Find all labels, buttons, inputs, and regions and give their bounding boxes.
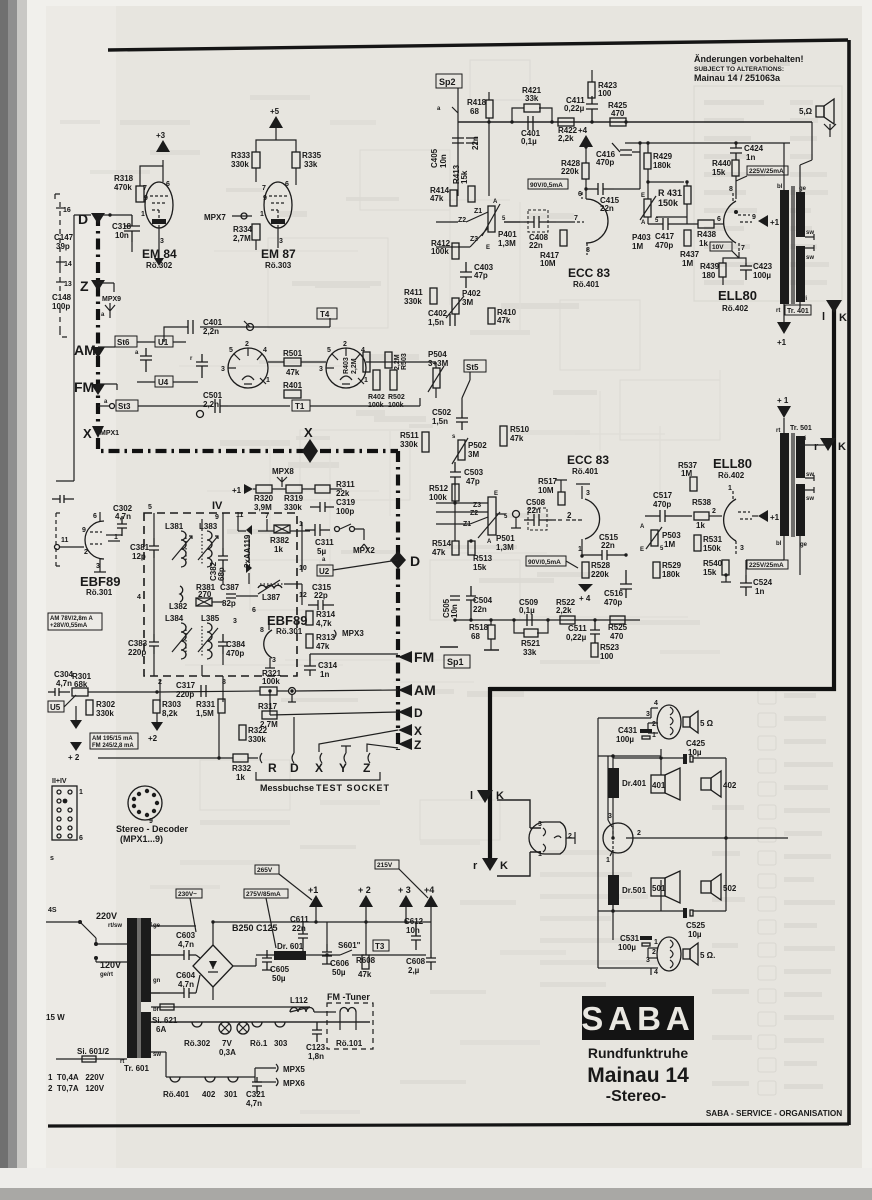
svg-text:330k: 330k	[96, 709, 114, 718]
svg-text:2: 2	[343, 341, 347, 348]
svg-text:L382: L382	[169, 602, 188, 611]
svg-text:3: 3	[272, 657, 276, 664]
svg-text:Tr. 401: Tr. 401	[787, 308, 809, 315]
svg-text:2,7M: 2,7M	[233, 234, 251, 243]
svg-text:330k: 330k	[231, 160, 249, 169]
svg-text:0,22µ: 0,22µ	[564, 104, 585, 113]
svg-text:X: X	[315, 761, 323, 775]
svg-text:+1: +1	[308, 885, 318, 895]
svg-text:10: 10	[299, 565, 307, 572]
svg-text:rt: rt	[776, 428, 780, 434]
svg-text:100µ: 100µ	[753, 271, 771, 280]
svg-text:s: s	[50, 855, 54, 862]
svg-text:47k: 47k	[430, 194, 444, 203]
svg-text:C608: C608	[406, 957, 426, 966]
svg-text:5 Ω: 5 Ω	[700, 719, 714, 728]
svg-text:220p: 220p	[176, 690, 194, 699]
svg-text:4: 4	[654, 700, 658, 707]
svg-text:R313: R313	[316, 633, 336, 642]
svg-text:Änderungen vorbehalten!: Änderungen vorbehalten!	[694, 54, 804, 64]
svg-text:8: 8	[586, 247, 590, 254]
svg-text:C504: C504	[473, 596, 493, 605]
svg-text:sw: sw	[806, 496, 814, 502]
svg-text:C402: C402	[428, 309, 448, 318]
svg-text:1n: 1n	[755, 587, 764, 596]
svg-text:SUBJECT TO ALTERATIONS:: SUBJECT TO ALTERATIONS:	[694, 66, 784, 73]
svg-text:R529: R529	[662, 561, 682, 570]
svg-text:C319: C319	[336, 498, 356, 507]
svg-text:C611: C611	[290, 915, 309, 924]
svg-text:K: K	[839, 312, 847, 324]
svg-text:2: 2	[712, 508, 716, 515]
svg-text:R540: R540	[703, 559, 723, 568]
svg-text:Z: Z	[80, 278, 89, 294]
svg-text:Tr. 501: Tr. 501	[790, 425, 812, 432]
svg-text:100k: 100k	[368, 402, 384, 409]
svg-text:5: 5	[327, 347, 331, 354]
svg-text:P402: P402	[462, 289, 481, 298]
svg-text:1,8n: 1,8n	[308, 1052, 324, 1061]
svg-text:Rö.301: Rö.301	[276, 627, 303, 636]
svg-text:33k: 33k	[523, 648, 537, 657]
svg-text:100µ: 100µ	[618, 943, 636, 952]
svg-text:bl: bl	[776, 541, 782, 547]
svg-text:47k: 47k	[497, 316, 511, 325]
svg-text:R538: R538	[692, 498, 712, 507]
svg-text:10µ: 10µ	[688, 930, 702, 939]
svg-text:47p: 47p	[466, 477, 480, 486]
svg-text:100µ: 100µ	[616, 735, 634, 744]
svg-text:C531: C531	[620, 934, 640, 943]
svg-text:1: 1	[364, 377, 368, 384]
svg-text:C148: C148	[52, 293, 72, 302]
svg-text:L387: L387	[262, 593, 281, 602]
svg-text:R608: R608	[356, 956, 376, 965]
svg-text:Stereo - Decoder: Stereo - Decoder	[116, 824, 189, 834]
svg-text:C383: C383	[128, 639, 148, 648]
svg-text:6A: 6A	[156, 1025, 166, 1034]
svg-text:C401: C401	[203, 318, 223, 327]
svg-text:12p: 12p	[132, 552, 146, 561]
svg-text:1: 1	[266, 377, 270, 384]
svg-text:150k: 150k	[658, 198, 679, 208]
svg-text:1,3M: 1,3M	[498, 239, 516, 248]
svg-text:AM 195/15 mA: AM 195/15 mA	[92, 736, 133, 742]
svg-text:U4: U4	[158, 378, 169, 387]
svg-text:SABA: SABA	[581, 1000, 695, 1037]
svg-text:4,7n: 4,7n	[246, 1099, 262, 1108]
svg-text:9: 9	[263, 195, 267, 202]
svg-text:1: 1	[728, 485, 732, 492]
svg-text:2xAA119: 2xAA119	[243, 534, 252, 568]
svg-text:470p: 470p	[226, 649, 244, 658]
svg-text:90V/0,5mA: 90V/0,5mA	[528, 559, 561, 566]
svg-text:R321: R321	[262, 669, 282, 678]
svg-text:ge: ge	[800, 542, 808, 548]
svg-text:Si. 601/2: Si. 601/2	[77, 1047, 110, 1056]
svg-text:502: 502	[723, 884, 737, 893]
svg-text:Sp2: Sp2	[439, 77, 456, 87]
svg-text:15k: 15k	[460, 170, 469, 184]
svg-text:3: 3	[96, 563, 100, 570]
svg-text:275V/85mA: 275V/85mA	[246, 891, 281, 898]
svg-text:402: 402	[202, 1090, 216, 1099]
svg-text:Rö.401: Rö.401	[572, 467, 599, 476]
svg-text:11: 11	[61, 537, 69, 544]
svg-text:MPX6: MPX6	[283, 1079, 305, 1088]
svg-text:+4: +4	[424, 885, 434, 895]
svg-text:ge/rt: ge/rt	[100, 972, 113, 978]
svg-text:C405: C405	[430, 148, 439, 168]
svg-text:sw: sw	[153, 1052, 161, 1058]
svg-text:220k: 220k	[561, 167, 579, 176]
svg-text:gn: gn	[153, 978, 161, 984]
svg-text:6: 6	[93, 513, 97, 520]
svg-text:ECC 83: ECC 83	[568, 266, 610, 280]
svg-text:R401: R401	[283, 381, 303, 390]
svg-text:0,1µ: 0,1µ	[519, 606, 535, 615]
svg-text:16: 16	[63, 207, 71, 214]
svg-text:100k: 100k	[429, 493, 447, 502]
svg-text:6: 6	[578, 191, 582, 198]
svg-text:2,µ: 2,µ	[408, 966, 420, 975]
svg-text:9: 9	[82, 527, 86, 534]
svg-text:Z2: Z2	[470, 510, 478, 517]
svg-text:R331: R331	[196, 700, 216, 709]
svg-text:22n: 22n	[529, 241, 543, 250]
svg-text:IV: IV	[212, 500, 223, 512]
svg-text:SABA - SERVICE - ORGANISATION: SABA - SERVICE - ORGANISATION	[706, 1109, 842, 1118]
svg-text:2 T0,7A 120V: 2 T0,7A 120V	[48, 1084, 105, 1093]
svg-text:C425: C425	[686, 739, 706, 748]
svg-text:7: 7	[265, 513, 269, 520]
svg-text:T4: T4	[320, 310, 330, 319]
svg-text:R514: R514	[432, 539, 452, 548]
svg-text:4: 4	[654, 969, 658, 976]
svg-text:C605: C605	[270, 965, 290, 974]
svg-text:3: 3	[279, 238, 283, 245]
svg-text:6: 6	[79, 835, 83, 842]
svg-text:C502: C502	[432, 408, 452, 417]
svg-text:7V: 7V	[222, 1039, 232, 1048]
svg-text:l: l	[822, 311, 825, 323]
svg-text:X: X	[83, 426, 92, 441]
svg-text:R335: R335	[302, 151, 322, 160]
svg-text:B250 C125: B250 C125	[232, 923, 278, 933]
svg-text:C147: C147	[54, 233, 74, 242]
svg-text:U1: U1	[158, 338, 169, 347]
svg-text:4,7n: 4,7n	[115, 512, 131, 521]
svg-text:C501: C501	[203, 391, 223, 400]
svg-text:2: 2	[637, 830, 641, 837]
svg-text:1,3M: 1,3M	[496, 543, 514, 552]
svg-text:E: E	[641, 193, 645, 199]
svg-text:15k: 15k	[703, 568, 717, 577]
svg-text:R502: R502	[388, 394, 405, 401]
svg-text:br: br	[153, 1007, 160, 1013]
svg-text:22k: 22k	[336, 489, 350, 498]
svg-text:R333: R333	[231, 151, 251, 160]
svg-text:rt/sw: rt/sw	[108, 923, 122, 929]
svg-text:402: 402	[723, 781, 737, 790]
svg-text:10V: 10V	[712, 244, 724, 251]
svg-text:1: 1	[606, 857, 610, 864]
svg-text:Rö.303: Rö.303	[265, 261, 292, 270]
svg-text:10n: 10n	[115, 231, 129, 240]
svg-text:Tr. 601: Tr. 601	[124, 1064, 149, 1073]
svg-text:6: 6	[285, 181, 289, 188]
svg-text:1,5n: 1,5n	[432, 417, 448, 426]
svg-text:47p: 47p	[474, 271, 488, 280]
svg-text:R317: R317	[258, 702, 278, 711]
svg-text:EBF89: EBF89	[267, 613, 307, 628]
svg-text:1M: 1M	[682, 259, 693, 268]
svg-text:3: 3	[319, 366, 323, 373]
svg-text:R438: R438	[697, 230, 717, 239]
svg-text:90V/0,5mA: 90V/0,5mA	[530, 182, 563, 189]
svg-text:D: D	[410, 553, 420, 569]
svg-text:5: 5	[148, 504, 152, 511]
svg-text:R513: R513	[473, 554, 493, 563]
svg-text:401: 401	[652, 781, 666, 790]
svg-text:3M: 3M	[468, 450, 479, 459]
svg-text:5: 5	[229, 347, 233, 354]
svg-text:C304: C304	[54, 670, 74, 679]
svg-text:D: D	[78, 211, 88, 227]
svg-text:L385: L385	[201, 614, 220, 623]
svg-text:R510: R510	[510, 425, 530, 434]
svg-text:C317: C317	[176, 681, 196, 690]
svg-text:22p: 22p	[314, 591, 328, 600]
svg-text:180k: 180k	[653, 161, 671, 170]
svg-text:10n: 10n	[406, 926, 420, 935]
svg-text:EM 87: EM 87	[261, 247, 296, 261]
svg-text:15k: 15k	[473, 563, 487, 572]
svg-text:47k: 47k	[432, 548, 446, 557]
svg-text:215V: 215V	[377, 862, 393, 869]
svg-text:303: 303	[274, 1039, 288, 1048]
svg-text:sw: sw	[806, 255, 814, 261]
svg-text:10M: 10M	[540, 259, 556, 268]
svg-text:St5: St5	[466, 363, 479, 372]
svg-text:Si. 621: Si. 621	[152, 1016, 178, 1025]
svg-text:+1: +1	[770, 218, 780, 227]
svg-text:Dr.501: Dr.501	[622, 886, 647, 895]
svg-text:180k: 180k	[662, 570, 680, 579]
svg-text:6: 6	[717, 216, 721, 223]
svg-text:R320: R320	[254, 494, 274, 503]
svg-text:5 Ω.: 5 Ω.	[700, 951, 715, 960]
svg-text:100k: 100k	[431, 247, 449, 256]
svg-text:470p: 470p	[653, 500, 671, 509]
svg-text:Rö.402: Rö.402	[718, 471, 745, 480]
svg-text:2: 2	[245, 341, 249, 348]
svg-text:ELL80: ELL80	[713, 456, 752, 471]
svg-text:22n: 22n	[292, 924, 306, 933]
svg-text:330k: 330k	[400, 440, 418, 449]
svg-text:Z1: Z1	[474, 208, 482, 215]
svg-text:C321: C321	[246, 1090, 266, 1099]
svg-text:R302: R302	[96, 700, 116, 709]
svg-text:Messbuchse: Messbuchse	[260, 783, 314, 793]
svg-text:K: K	[838, 441, 846, 453]
svg-text:33k: 33k	[525, 94, 539, 103]
svg-text:501: 501	[652, 884, 666, 893]
svg-text:100: 100	[600, 652, 614, 661]
svg-text:8,2k: 8,2k	[162, 709, 178, 718]
svg-text:1k: 1k	[699, 239, 708, 248]
svg-text:C381: C381	[130, 543, 150, 552]
svg-text:1n: 1n	[320, 670, 329, 679]
svg-text:C503: C503	[464, 468, 484, 477]
svg-text:L384: L384	[165, 614, 184, 623]
svg-text:3: 3	[586, 490, 590, 497]
svg-text:3: 3	[740, 545, 744, 552]
svg-text:II+IV: II+IV	[52, 778, 67, 785]
svg-text:X: X	[414, 724, 422, 738]
svg-text:265V: 265V	[257, 867, 273, 874]
svg-text:10n: 10n	[450, 604, 459, 618]
svg-text:L112: L112	[290, 996, 308, 1005]
svg-text:13: 13	[64, 281, 72, 288]
svg-text:1M: 1M	[632, 242, 643, 251]
svg-text:R439: R439	[700, 262, 720, 271]
svg-text:St6: St6	[117, 338, 130, 347]
svg-text:AM: AM	[414, 682, 436, 698]
svg-text:C516: C516	[604, 589, 624, 598]
svg-text:A: A	[493, 199, 498, 205]
svg-text:470: 470	[611, 109, 625, 118]
svg-text:+3: +3	[156, 131, 166, 140]
svg-text:470k: 470k	[114, 183, 132, 192]
svg-text:2,2k: 2,2k	[556, 606, 572, 615]
svg-text:R531: R531	[703, 535, 723, 544]
svg-text:R437: R437	[680, 250, 700, 259]
svg-text:TEST SOCKET: TEST SOCKET	[316, 783, 390, 793]
svg-text:301: 301	[224, 1090, 238, 1099]
svg-text:U5: U5	[50, 703, 61, 712]
svg-text:1n: 1n	[746, 153, 755, 162]
svg-text:3+3M: 3+3M	[428, 359, 449, 368]
svg-text:22n: 22n	[471, 136, 480, 150]
svg-text:68: 68	[471, 632, 480, 641]
svg-text:P401: P401	[498, 230, 517, 239]
svg-text:P502: P502	[468, 441, 487, 450]
svg-text:9: 9	[752, 214, 756, 221]
svg-text:MPX1: MPX1	[100, 430, 119, 437]
svg-text:1: 1	[654, 939, 658, 946]
svg-text:3: 3	[646, 711, 650, 718]
svg-text:FM: FM	[414, 649, 434, 665]
svg-text:Dr. 601: Dr. 601	[277, 942, 304, 951]
svg-text:4,7n: 4,7n	[178, 980, 194, 989]
svg-text:100p: 100p	[336, 507, 354, 516]
svg-text:470p: 470p	[596, 158, 614, 167]
svg-text:AM: AM	[74, 342, 96, 358]
svg-text:68p: 68p	[217, 567, 226, 581]
svg-text:+ 3: + 3	[398, 885, 411, 895]
svg-text:T1: T1	[295, 402, 305, 411]
svg-text:2: 2	[652, 949, 656, 956]
svg-text:r: r	[473, 860, 478, 872]
svg-text:Dr.401: Dr.401	[622, 779, 647, 788]
svg-text:+5: +5	[270, 107, 280, 116]
svg-text:22n: 22n	[527, 506, 541, 515]
svg-text:R521: R521	[521, 639, 541, 648]
svg-text:sw: sw	[806, 472, 814, 478]
svg-text:Rö.302: Rö.302	[184, 1039, 211, 1048]
svg-text:P503: P503	[662, 531, 681, 540]
svg-text:D: D	[414, 706, 423, 720]
svg-text:X: X	[304, 425, 313, 440]
svg-text:3M: 3M	[462, 298, 473, 307]
svg-text:R418: R418	[467, 98, 487, 107]
svg-text:C423: C423	[753, 262, 773, 271]
svg-text:4: 4	[263, 347, 267, 354]
svg-text:1M: 1M	[664, 540, 675, 549]
svg-text:330k: 330k	[404, 297, 422, 306]
svg-text:+2: +2	[148, 734, 158, 743]
svg-text:3: 3	[538, 821, 542, 828]
svg-text:K: K	[500, 860, 508, 872]
svg-text:C603: C603	[176, 931, 196, 940]
svg-text:Rö.401: Rö.401	[573, 280, 600, 289]
svg-text:50µ: 50µ	[272, 974, 286, 983]
svg-text:15 W: 15 W	[46, 1013, 65, 1022]
svg-text:47k: 47k	[316, 642, 330, 651]
svg-text:47k: 47k	[286, 368, 300, 377]
svg-text:C417: C417	[655, 232, 675, 241]
svg-text:Z2: Z2	[458, 217, 466, 224]
svg-text:Rö.101: Rö.101	[336, 1039, 363, 1048]
svg-text:+1: +1	[770, 513, 780, 522]
svg-text:220V: 220V	[96, 911, 117, 921]
svg-text:2: 2	[567, 511, 572, 520]
svg-text:7: 7	[262, 185, 266, 192]
svg-text:9: 9	[215, 514, 219, 521]
svg-text:100: 100	[598, 89, 612, 98]
svg-text:11: 11	[236, 512, 244, 519]
svg-text:22n: 22n	[601, 541, 615, 550]
svg-text:E: E	[494, 491, 498, 497]
svg-text:A: A	[640, 524, 645, 530]
svg-text:R314: R314	[316, 610, 336, 619]
svg-text:r: r	[814, 441, 819, 453]
svg-text:Z: Z	[414, 738, 421, 752]
svg-text:S601": S601"	[338, 941, 361, 950]
svg-text:C525: C525	[686, 921, 706, 930]
svg-text:330k: 330k	[248, 735, 266, 744]
svg-text:0,3A: 0,3A	[219, 1048, 236, 1057]
svg-text:Mainau 14: Mainau 14	[587, 1064, 689, 1087]
svg-text:5µ: 5µ	[317, 547, 326, 556]
svg-text:6: 6	[252, 607, 256, 614]
svg-text:FM 245/2,8 mA: FM 245/2,8 mA	[92, 743, 134, 749]
svg-text:10M: 10M	[538, 486, 554, 495]
svg-text:+28V/0,55mA: +28V/0,55mA	[50, 623, 88, 629]
svg-text:R411: R411	[404, 288, 423, 297]
svg-text:39p: 39p	[56, 242, 70, 251]
svg-text:7: 7	[574, 215, 578, 222]
svg-text:Rö.401: Rö.401	[163, 1090, 190, 1099]
svg-text:MPX5: MPX5	[283, 1065, 305, 1074]
svg-text:3: 3	[160, 238, 164, 245]
svg-text:P403: P403	[632, 233, 651, 242]
svg-text:220k: 220k	[591, 570, 609, 579]
svg-text:C431: C431	[618, 726, 638, 735]
svg-text:7: 7	[741, 245, 745, 252]
svg-text:230V~: 230V~	[178, 891, 197, 898]
